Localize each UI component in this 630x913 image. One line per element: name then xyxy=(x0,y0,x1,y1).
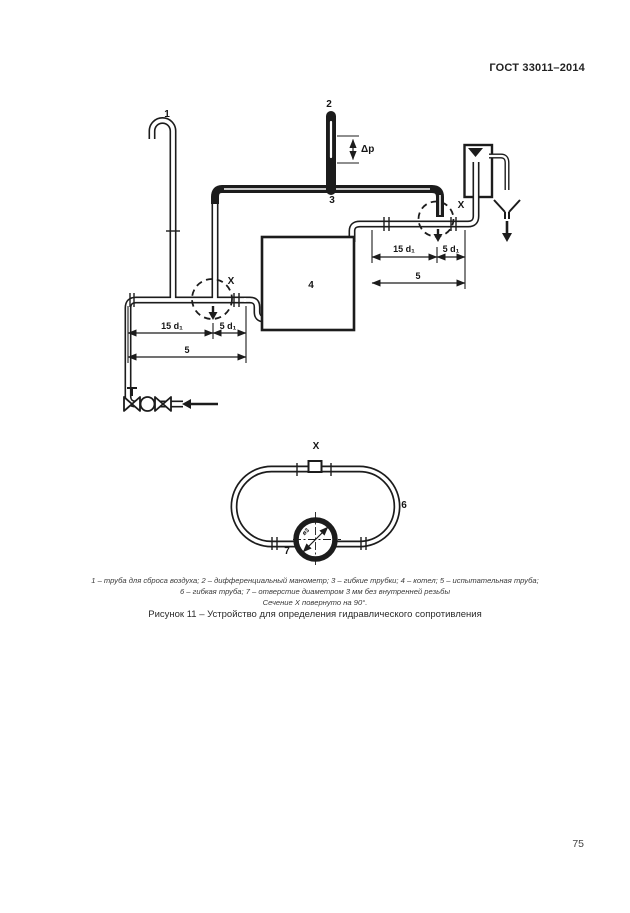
valve-assembly xyxy=(124,388,218,411)
air-release-pipe xyxy=(152,121,173,301)
dim-right-span: 5 xyxy=(415,271,420,281)
drain-funnel xyxy=(494,200,520,242)
section-x-right-label: X xyxy=(458,200,465,211)
section-x-view-label: X xyxy=(313,441,320,452)
page-number: 75 xyxy=(0,838,584,850)
flexible-tube-label: 6 xyxy=(401,500,407,511)
section-x-left-label: X xyxy=(228,276,235,287)
dim-right-15d: 15 d₁ xyxy=(393,244,415,254)
flow-meter-icon xyxy=(141,397,155,411)
dimensions-right: 15 d₁ 5 d₁ 5 xyxy=(372,230,465,289)
tap-arrow-right-icon xyxy=(434,234,443,242)
differential-manometer: Δp xyxy=(331,116,374,190)
shutoff-valve-icon xyxy=(155,397,163,411)
caption-section-note: Сечение X повернуто на 90°. xyxy=(0,598,630,607)
caption-items-line2: 6 – гибкая труба; 7 – отверстие диаметро… xyxy=(0,587,630,596)
hydraulic-resistance-diagram: 4 Δp xyxy=(0,0,630,630)
manometer-label: 2 xyxy=(326,99,332,110)
tap-stub xyxy=(309,461,322,472)
flex-tube-label: 3 xyxy=(329,195,335,206)
caption-items-line1: 1 – труба для сброса воздуха; 2 – диффер… xyxy=(0,576,630,585)
document-page: ГОСТ 33011–2014 4 xyxy=(0,0,630,913)
boiler-label: 4 xyxy=(308,280,314,291)
drain-arrow-icon xyxy=(502,233,512,242)
figure-title: Рисунок 11 – Устройство для определения … xyxy=(0,609,630,620)
dim-left-5d: 5 d₁ xyxy=(220,321,237,331)
dimensions-left: 15 d₁ 5 d₁ 5 xyxy=(128,306,246,363)
dim-right-5d: 5 d₁ xyxy=(443,244,460,254)
dim-left-span: 5 xyxy=(184,345,189,355)
section-x-view: X ø3 6 7 xyxy=(234,441,407,567)
dim-left-15d: 15 d₁ xyxy=(161,321,183,331)
hole-label: 7 xyxy=(284,546,290,557)
flow-in-arrow-icon xyxy=(182,399,191,409)
overflow-tank xyxy=(465,145,521,242)
air-pipe-label: 1 xyxy=(164,109,170,120)
delta-p-label: Δp xyxy=(361,144,374,155)
